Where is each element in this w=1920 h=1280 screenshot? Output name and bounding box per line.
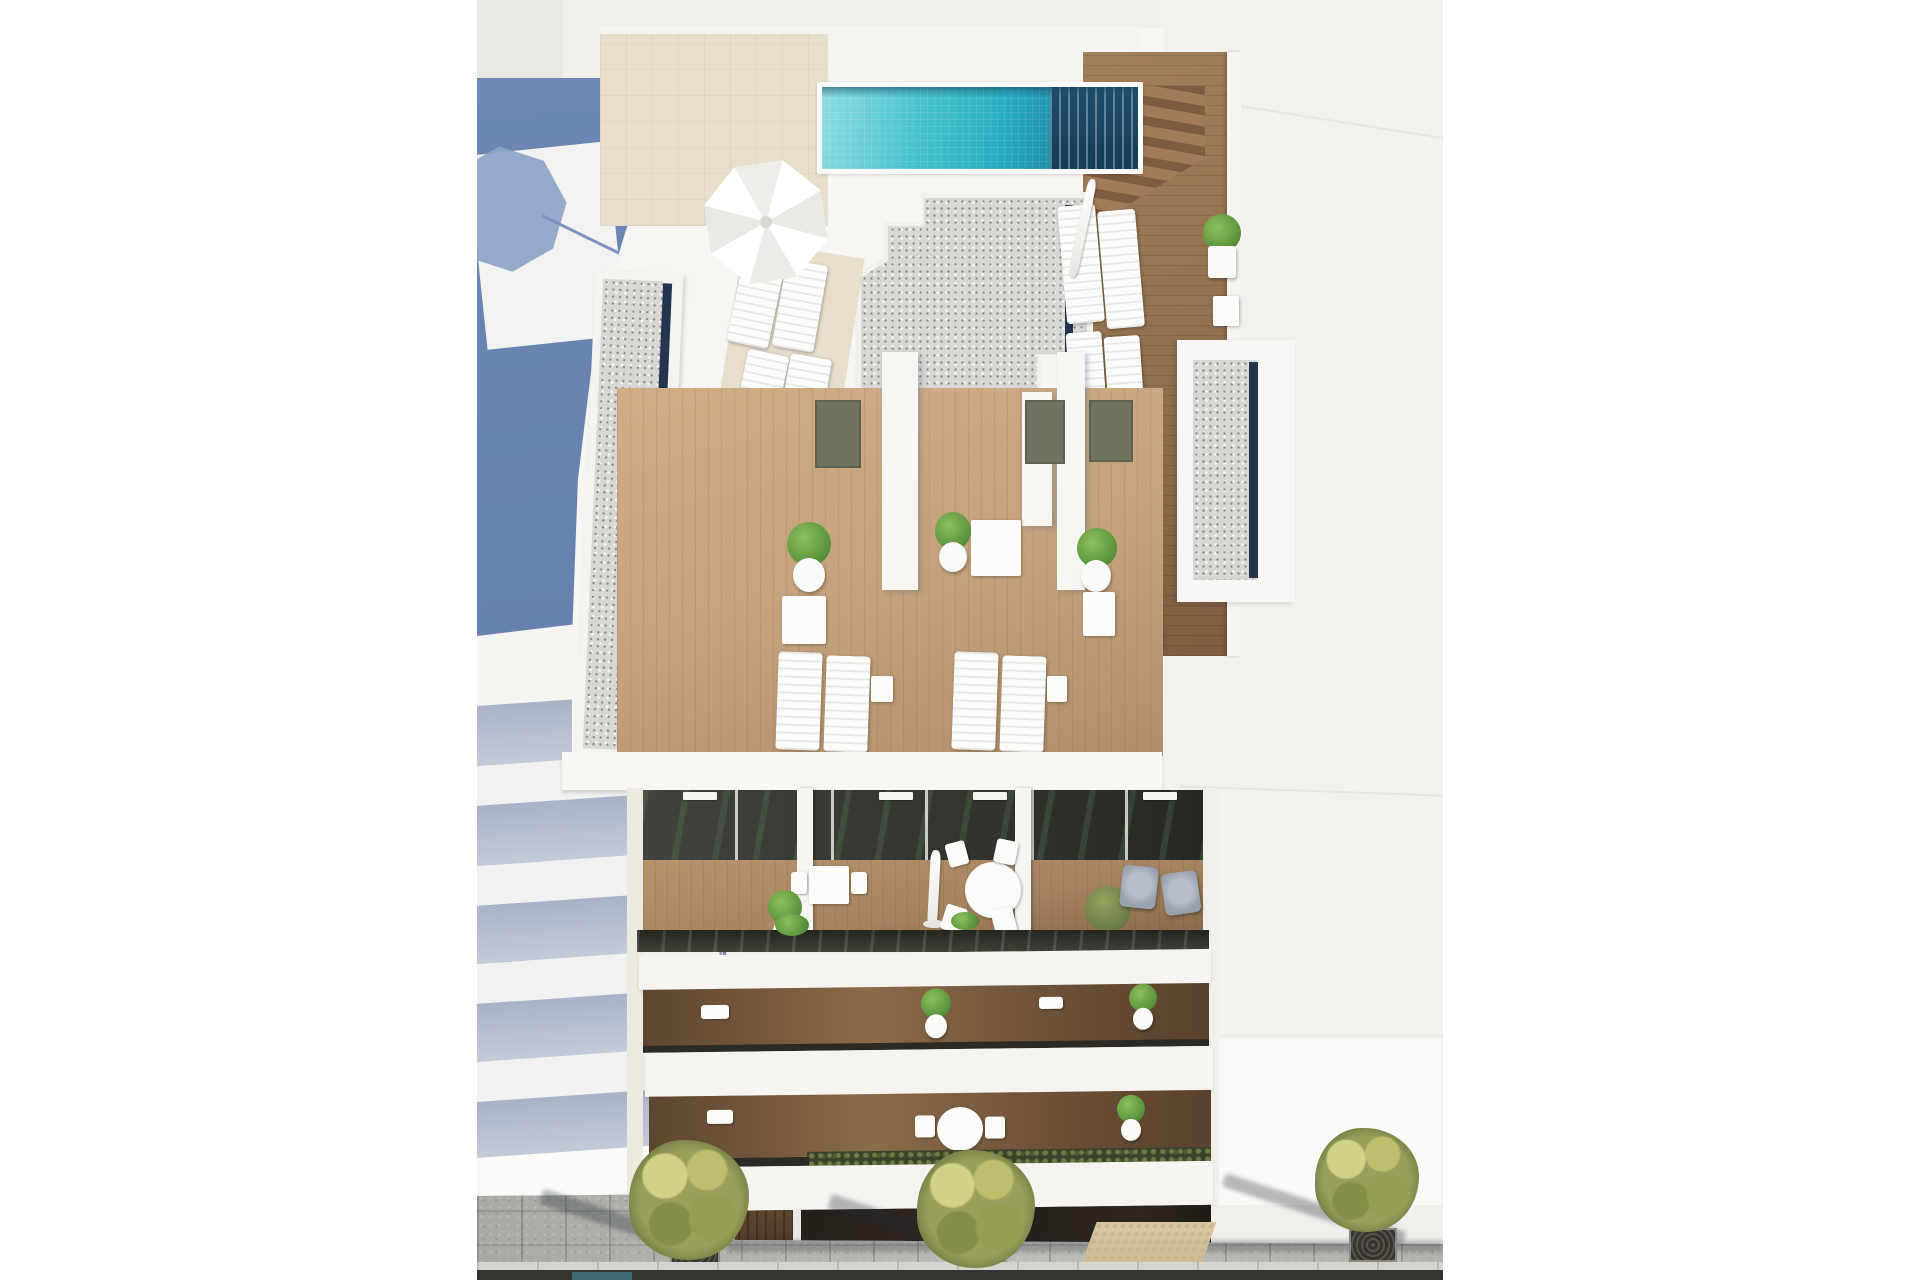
plant-pot — [793, 558, 825, 592]
door-mullion — [925, 790, 928, 864]
pool-water — [822, 87, 1138, 169]
road-object — [572, 1272, 632, 1280]
glass-balustrade — [637, 930, 1209, 952]
rooftop-pool — [817, 82, 1143, 174]
bar-stool — [1213, 296, 1239, 326]
balcony-strip — [643, 983, 1209, 1048]
bistro-table — [971, 520, 1021, 576]
ac-vent — [1143, 792, 1177, 800]
door-mullion — [1125, 790, 1128, 864]
parasol-shadow — [477, 140, 573, 278]
skylight-strip — [1249, 362, 1258, 578]
plant-pot — [1133, 1008, 1153, 1030]
bistro-table — [809, 866, 849, 904]
plant-pot — [1081, 560, 1111, 592]
chair — [851, 872, 867, 894]
neighbor-roof-strip — [477, 0, 563, 80]
balcony-partition — [1015, 788, 1031, 932]
roof-seam — [1221, 102, 1443, 140]
chair — [915, 1115, 935, 1137]
armchair — [1119, 864, 1159, 910]
sun-lounger — [999, 655, 1046, 752]
gravel-roof — [1193, 360, 1257, 580]
sun-lounger — [823, 655, 870, 752]
furniture-glimpse — [707, 1110, 733, 1124]
plant-top — [951, 912, 979, 930]
roof-seam — [1180, 785, 1443, 796]
roof-box-east — [1177, 340, 1295, 602]
tactile-paving — [1081, 1222, 1216, 1264]
terrace-door — [1025, 400, 1065, 464]
sun-lounger — [775, 651, 822, 750]
plant-pot — [925, 1014, 947, 1038]
ac-vent — [879, 792, 913, 800]
street-tree — [1315, 1128, 1419, 1232]
furniture-glimpse — [701, 1005, 729, 1019]
bistro-table — [1083, 592, 1115, 636]
pool-rim-shadow — [822, 87, 1138, 97]
round-dining-table — [937, 1107, 983, 1152]
pool-deep-end — [1050, 87, 1138, 169]
chair — [985, 1116, 1005, 1138]
plant-top — [775, 914, 809, 936]
street-tree — [629, 1140, 749, 1260]
side-table — [871, 676, 893, 702]
balcony-glass-doors — [643, 790, 1203, 864]
plant-pot — [939, 542, 967, 572]
door-mullion — [831, 790, 834, 864]
chair — [791, 872, 807, 894]
render-canvas — [477, 0, 1443, 1280]
street-tree — [917, 1150, 1035, 1268]
balcony-fascia — [645, 1046, 1213, 1097]
bistro-table — [782, 596, 826, 644]
terrace-door — [815, 400, 861, 468]
sun-lounger — [951, 651, 998, 750]
furniture-glimpse — [1039, 997, 1063, 1009]
armchair — [1160, 870, 1201, 917]
scene: Photorealistic aerial 3D architectural r… — [0, 0, 1920, 1280]
building-shadow-on-sidewalk — [727, 1240, 1443, 1252]
terrace-wall — [882, 352, 918, 590]
plant-pot — [1208, 246, 1236, 278]
ac-vent — [973, 792, 1007, 800]
door-mullion — [1031, 790, 1034, 864]
plant-pot — [1121, 1119, 1141, 1141]
ac-vent — [683, 792, 717, 800]
door-mullion — [735, 790, 738, 864]
tree-grate — [1349, 1228, 1397, 1262]
terrace-door — [1089, 400, 1133, 462]
terrace-parapet — [562, 752, 1162, 790]
side-table — [1047, 676, 1067, 702]
